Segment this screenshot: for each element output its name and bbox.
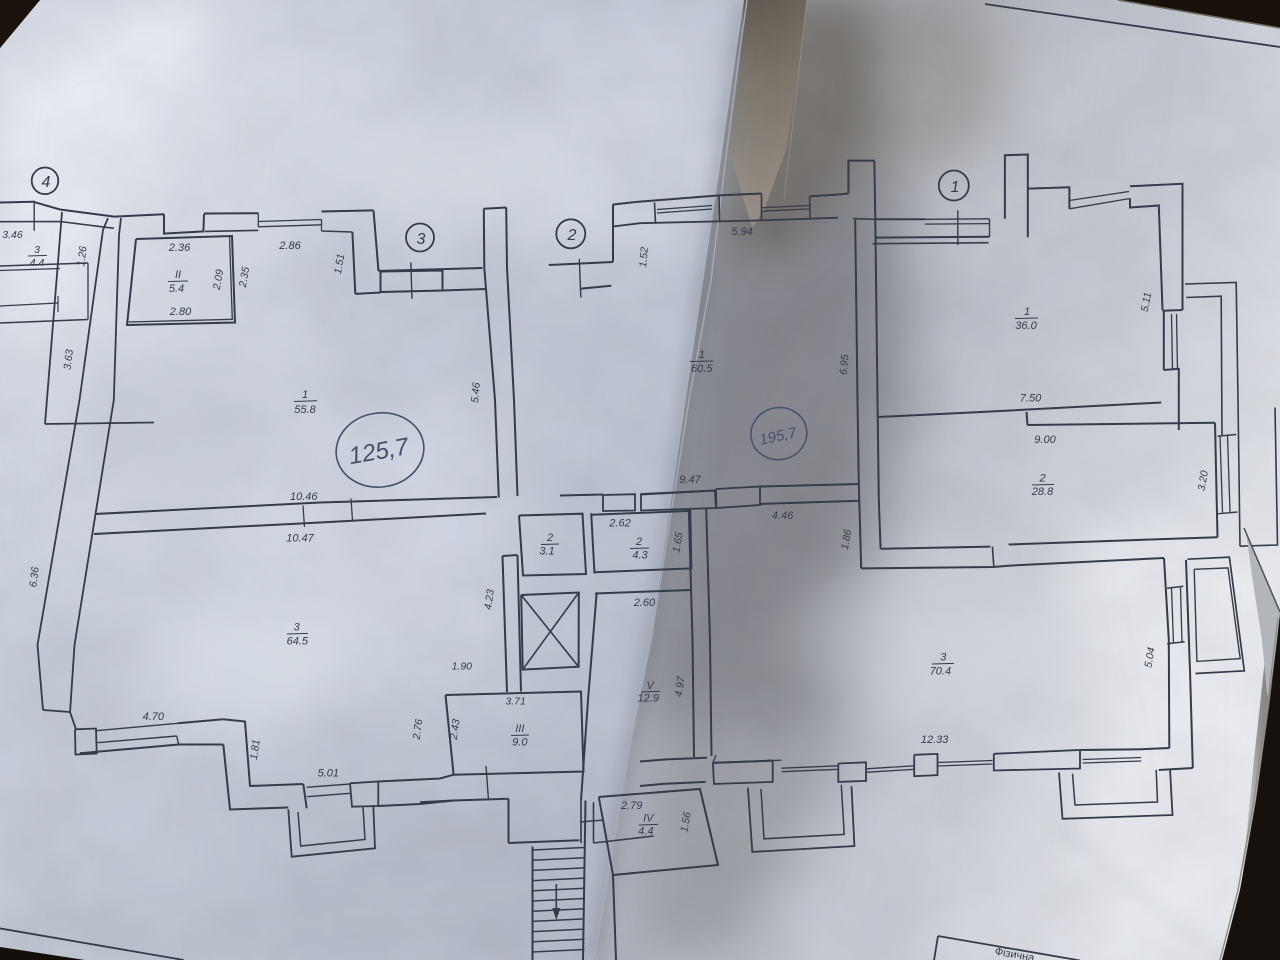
svg-text:2: 2 (546, 532, 553, 544)
svg-text:3: 3 (294, 622, 301, 634)
svg-text:1: 1 (1024, 306, 1030, 318)
svg-text:55.8: 55.8 (294, 404, 316, 416)
svg-text:9.00: 9.00 (1034, 434, 1056, 446)
svg-text:4.4: 4.4 (30, 257, 45, 269)
svg-text:70.4: 70.4 (930, 666, 951, 678)
svg-text:II: II (175, 269, 181, 281)
svg-text:2.36: 2.36 (168, 242, 191, 254)
svg-text:64.5: 64.5 (287, 635, 309, 647)
svg-text:5.94: 5.94 (731, 226, 752, 238)
svg-text:1: 1 (951, 179, 960, 196)
svg-text:9.47: 9.47 (679, 474, 701, 486)
svg-text:3: 3 (34, 244, 40, 256)
svg-text:1.90: 1.90 (452, 660, 473, 672)
svg-text:28.8: 28.8 (1031, 486, 1054, 498)
svg-text:12.9: 12.9 (637, 692, 658, 704)
svg-text:1: 1 (699, 349, 705, 361)
svg-text:6.95: 6.95 (838, 354, 852, 376)
svg-text:2.60: 2.60 (633, 597, 656, 609)
svg-text:60.5: 60.5 (691, 363, 713, 375)
svg-text:5.4: 5.4 (169, 283, 184, 295)
svg-text:1: 1 (302, 389, 308, 401)
svg-text:IV: IV (643, 813, 655, 825)
svg-text:7.50: 7.50 (1020, 393, 1042, 405)
svg-text:5.46: 5.46 (469, 382, 483, 404)
svg-text:2: 2 (567, 227, 577, 244)
svg-text:2.62: 2.62 (608, 518, 630, 530)
svg-text:36.0: 36.0 (1015, 320, 1037, 332)
svg-text:1.52: 1.52 (637, 246, 651, 268)
svg-text:4.46: 4.46 (772, 510, 794, 522)
svg-text:3.46: 3.46 (2, 229, 23, 241)
svg-text:9.0: 9.0 (512, 736, 528, 748)
svg-text:10.46: 10.46 (290, 491, 318, 503)
svg-text:III: III (515, 723, 524, 735)
svg-text:10.47: 10.47 (286, 533, 314, 545)
svg-text:2: 2 (635, 536, 642, 548)
svg-text:2.86: 2.86 (278, 240, 301, 252)
svg-text:5.01: 5.01 (318, 768, 339, 780)
svg-text:4: 4 (42, 174, 51, 191)
svg-text:3.63: 3.63 (62, 349, 76, 371)
svg-text:4.70: 4.70 (143, 711, 165, 723)
svg-text:3: 3 (940, 652, 947, 664)
svg-text:2: 2 (1038, 473, 1045, 485)
svg-text:4.3: 4.3 (632, 550, 648, 562)
svg-text:2.80: 2.80 (169, 306, 192, 318)
svg-text:6.36: 6.36 (27, 566, 41, 588)
svg-text:1.26: 1.26 (75, 245, 89, 267)
svg-text:2.79: 2.79 (620, 800, 642, 812)
svg-text:12.33: 12.33 (921, 734, 949, 746)
svg-text:4.4: 4.4 (638, 826, 653, 838)
svg-text:3.71: 3.71 (505, 696, 525, 708)
svg-text:3.1: 3.1 (539, 546, 554, 558)
svg-text:3: 3 (417, 231, 426, 248)
